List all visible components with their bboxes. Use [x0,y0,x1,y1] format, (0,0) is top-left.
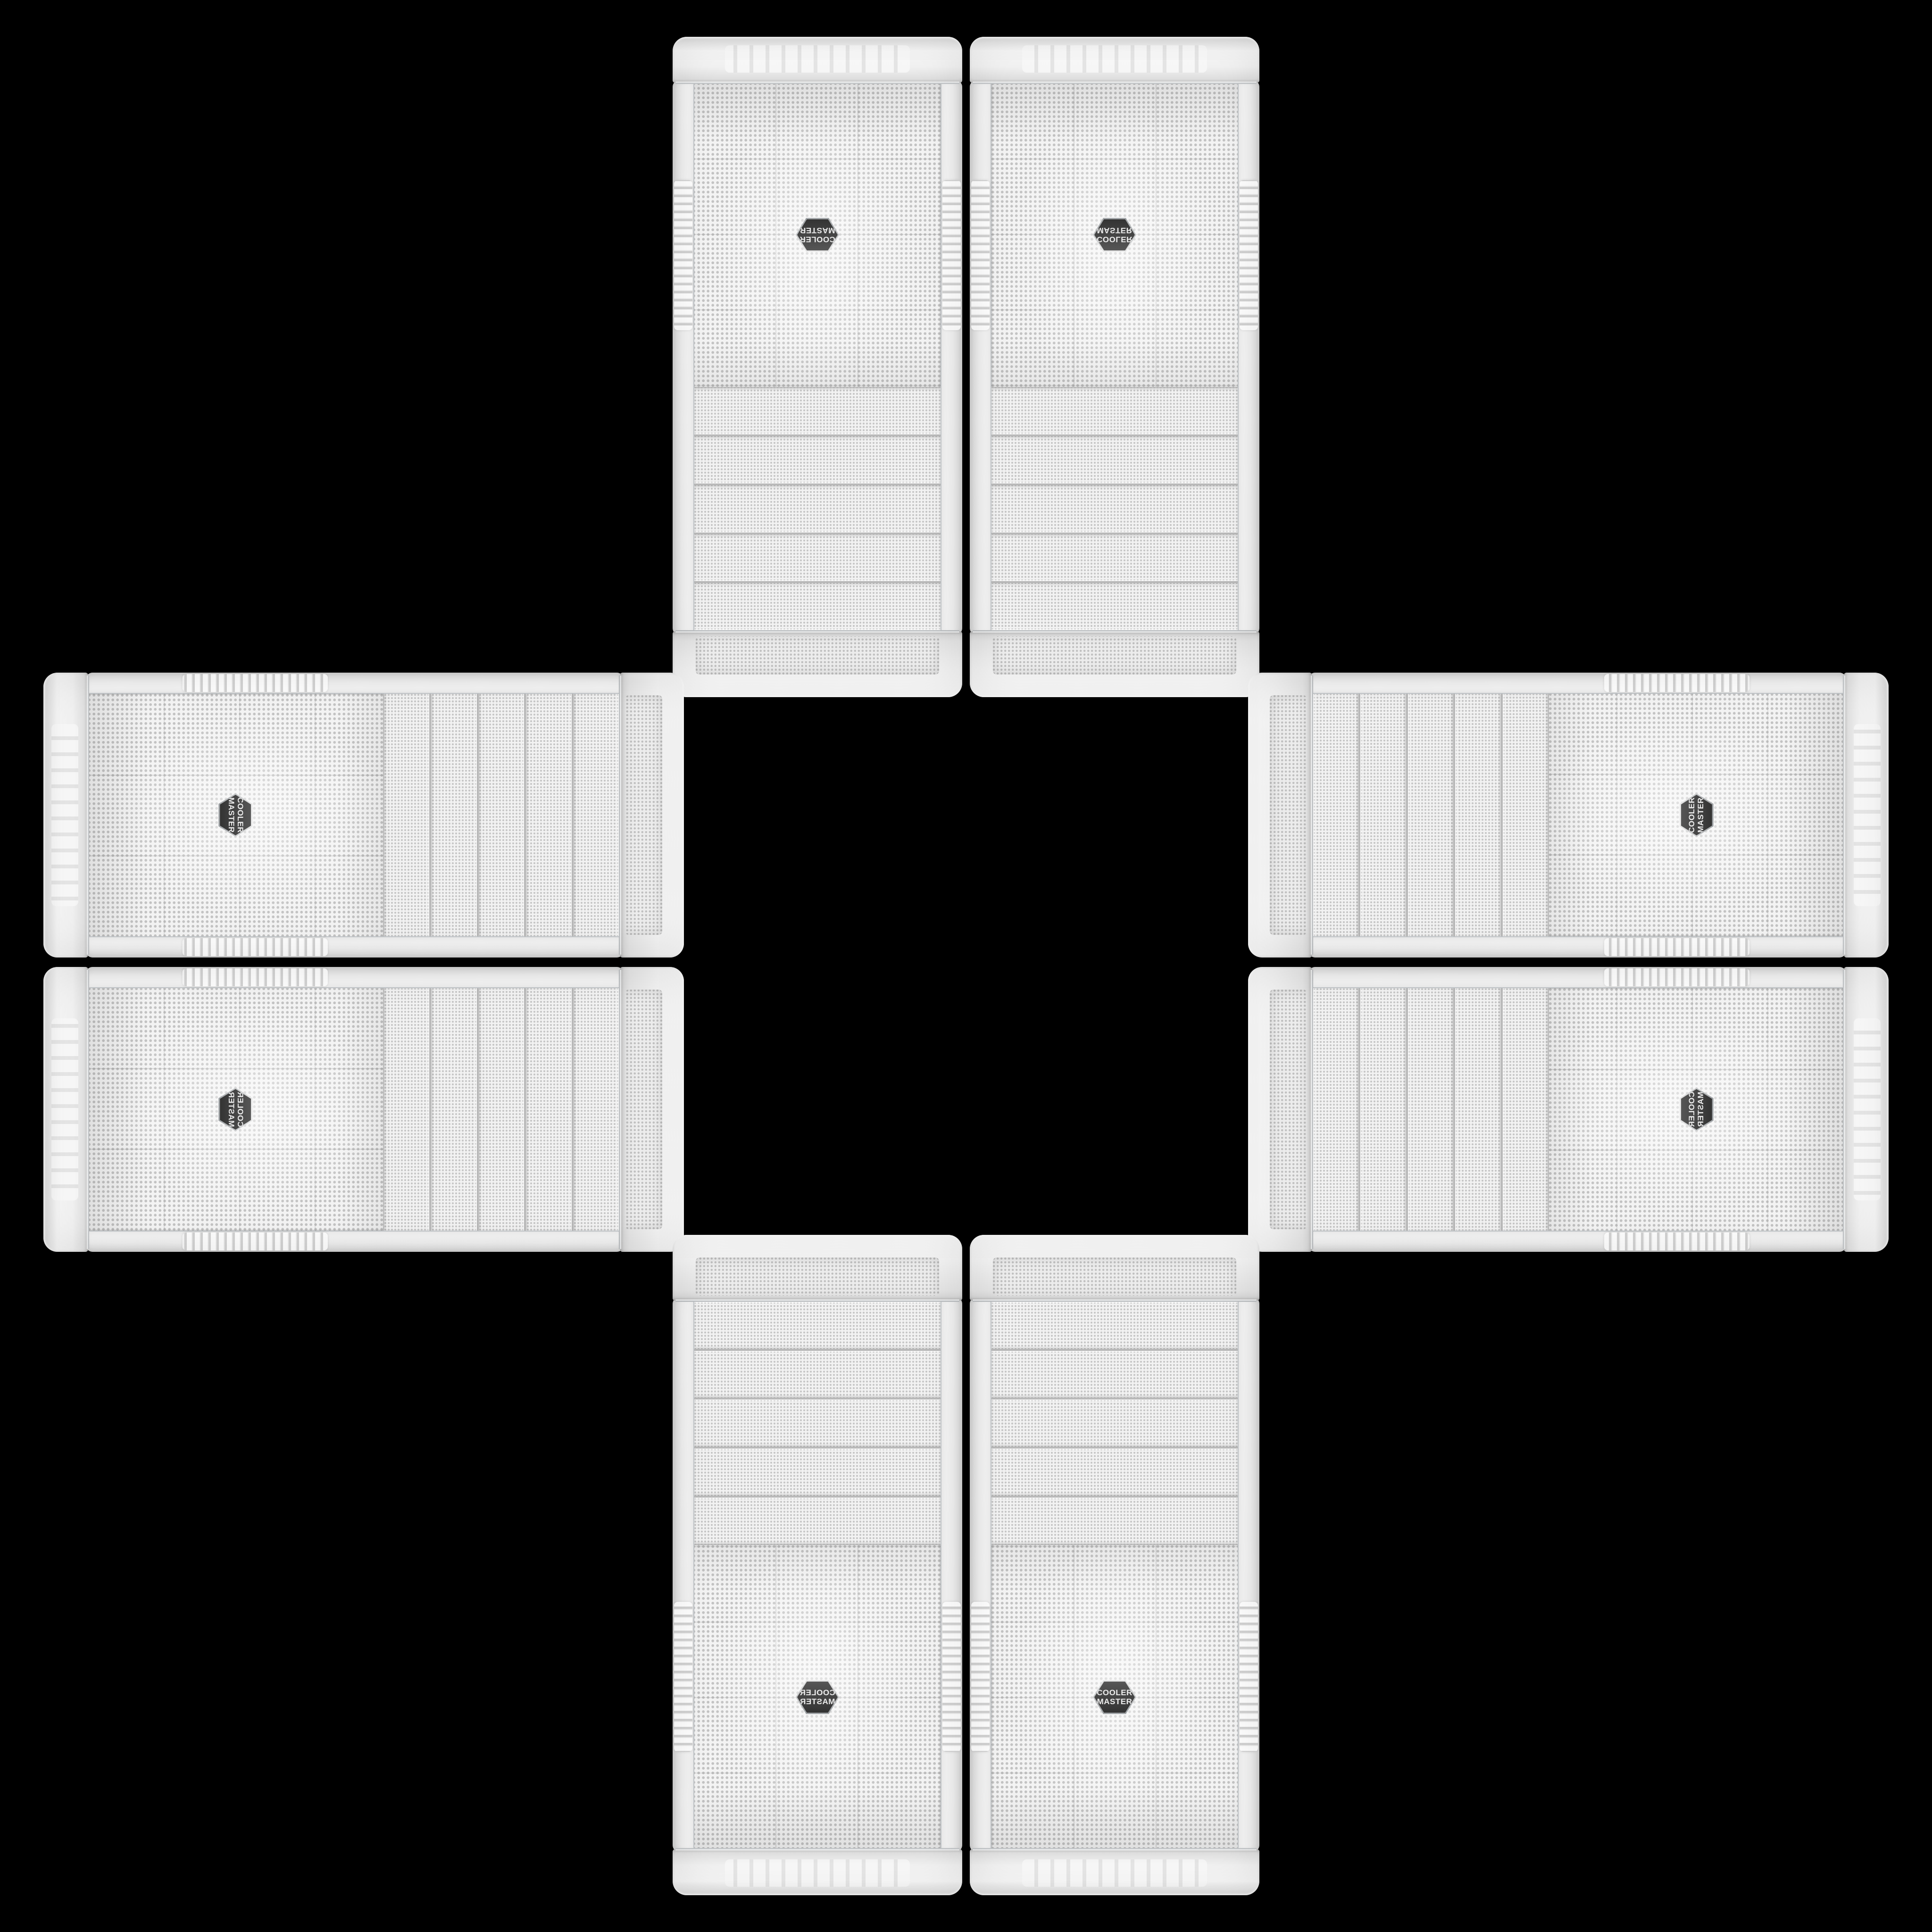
case-right-upper: COOLER MASTER [1248,673,1889,958]
lighting-vignette [43,673,684,958]
lighting-vignette [1248,967,1889,1252]
case-left-upper: COOLER MASTER [43,673,684,958]
lighting-vignette [970,37,1259,697]
case-bottom-left: COOLER MASTER [673,1235,962,1895]
lighting-vignette [1248,673,1889,958]
lighting-vignette [673,1235,962,1895]
case-right-lower: COOLER MASTER [1248,967,1889,1252]
scene: COOLER MASTER [0,0,1932,1932]
case-bottom-right: COOLER MASTER [970,1235,1259,1895]
lighting-vignette [970,1235,1259,1895]
case-top-left: COOLER MASTER [673,37,962,697]
lighting-vignette [673,37,962,697]
case-top-right: COOLER MASTER [970,37,1259,697]
lighting-vignette [43,967,684,1252]
case-left-lower: COOLER MASTER [43,967,684,1252]
